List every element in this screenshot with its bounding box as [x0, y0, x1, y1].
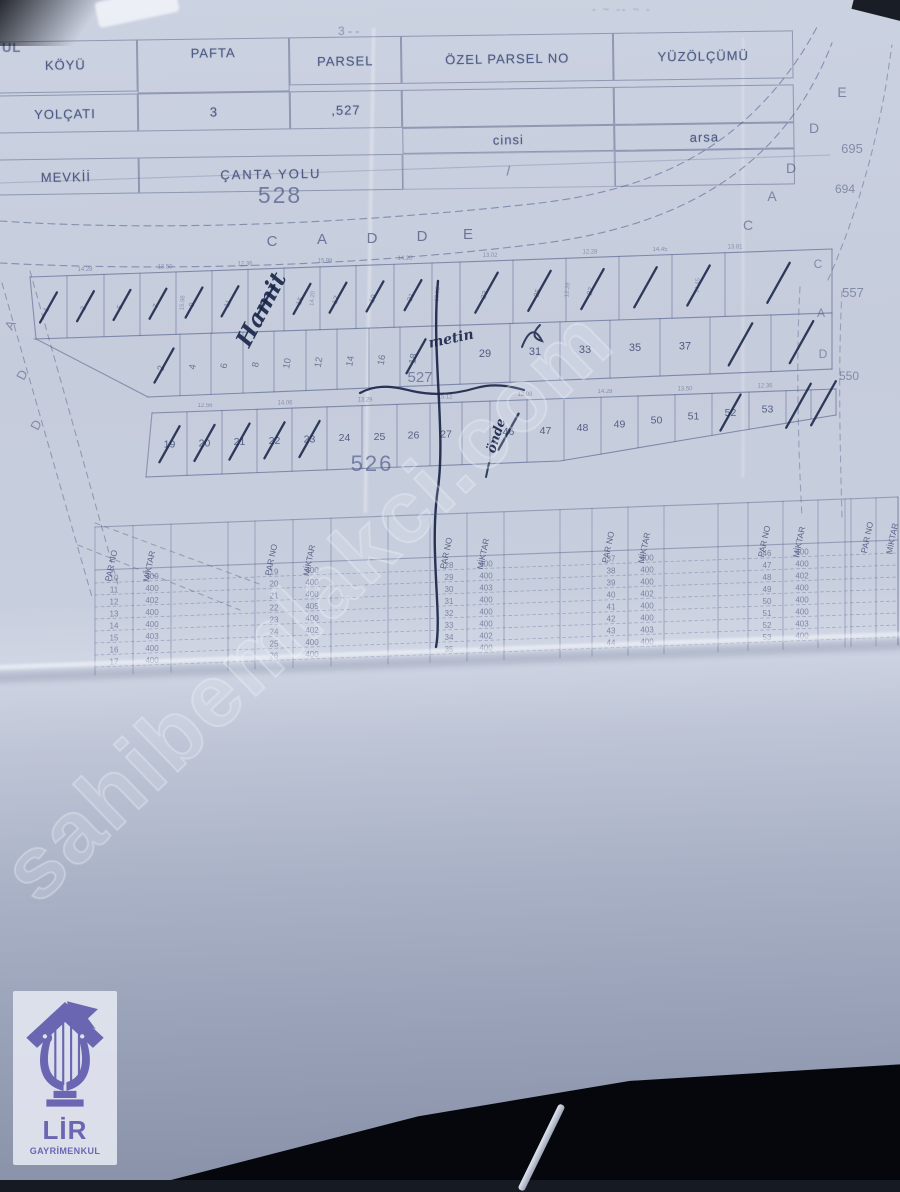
- dimension-number: 13.29: [357, 398, 373, 404]
- table-par-no-value: 39: [607, 579, 616, 588]
- pen-slash-mark: [720, 395, 740, 431]
- parcel-number: 16: [376, 354, 389, 366]
- adjacent-parcel-number: 695: [841, 141, 863, 156]
- table-miktar-value: 403: [795, 620, 809, 629]
- table-miktar-value: 403: [640, 625, 654, 634]
- table-miktar-value: 402: [479, 631, 493, 640]
- table-miktar-value: 403: [479, 583, 493, 592]
- table-miktar-value: 402: [145, 596, 159, 605]
- logo-name: LİR: [13, 1117, 117, 1143]
- map-line: [146, 413, 152, 477]
- adjacent-parcel-number: 694: [835, 182, 855, 196]
- table-par-no-value: 14: [110, 621, 119, 630]
- table-par-no-value: 51: [763, 609, 772, 618]
- map-line: [840, 291, 842, 517]
- pen-slash-mark: [299, 421, 319, 457]
- dimension-number: 14.20: [309, 290, 316, 306]
- parcel-number: 37: [679, 340, 691, 352]
- agency-logo-card: LİR GAYRİMENKUL: [13, 991, 117, 1165]
- table-miktar-value: 400: [640, 601, 654, 610]
- table-miktar-value: 400: [640, 565, 654, 574]
- road-label-letter: D: [809, 120, 819, 136]
- table-miktar-value: 400: [479, 595, 493, 604]
- pen-slash-mark: [229, 424, 249, 460]
- parcel-number: 49: [614, 418, 626, 430]
- dimension-number: 14.20: [397, 256, 413, 262]
- road-label-letter: C: [743, 217, 753, 233]
- dimension-number: 13.81: [727, 244, 743, 250]
- parcel-number: 24: [339, 432, 351, 444]
- pen-slash-mark: [634, 267, 656, 307]
- table-par-no-value: 38: [607, 567, 616, 576]
- map-line: [0, 155, 830, 183]
- dimension-number: 12.36: [237, 261, 253, 267]
- table-miktar-value: 400: [145, 572, 159, 581]
- handwritten-name: metin: [427, 327, 475, 352]
- table-miktar-value: 400: [795, 560, 809, 569]
- table-miktar-value: 402: [640, 589, 654, 598]
- table-par-no-value: 10: [110, 573, 119, 582]
- lyre-house-logo-icon: [22, 996, 108, 1114]
- map-line: [95, 523, 262, 585]
- pen-slash-mark: [475, 273, 497, 313]
- table-miktar-value: 400: [640, 577, 654, 586]
- parcel-number: 48: [577, 422, 589, 434]
- road-label-letter: A: [1, 317, 18, 332]
- dimension-number: 15.98: [179, 295, 186, 311]
- table-par-no-value: 41: [607, 603, 616, 612]
- table-par-no-value: 30: [445, 585, 454, 594]
- table-par-no-value: 42: [607, 615, 616, 624]
- dimension-number: 12.56: [197, 403, 213, 409]
- dimension-number: 12.36: [757, 383, 773, 389]
- road-label-letter: D: [786, 160, 796, 176]
- table-miktar-value: 400: [145, 620, 159, 629]
- table-par-no-value: 29: [445, 573, 454, 582]
- parcel-number: 50: [651, 414, 663, 426]
- dimension-number: 14.28: [77, 267, 93, 273]
- table-par-no-value: 12: [110, 597, 119, 606]
- road-label-letter: D: [417, 228, 428, 245]
- map-line: [95, 497, 898, 527]
- table-header-par-no: PAR NO: [859, 520, 876, 554]
- table-miktar-value: 400: [479, 607, 493, 616]
- logo-subtitle: GAYRİMENKUL: [13, 1146, 117, 1156]
- table-row-line: [95, 577, 898, 607]
- parcel-number: 35: [629, 342, 641, 354]
- dimension-number: 15.98: [317, 259, 333, 265]
- cadastral-map: CADDECADDECADADD528527526695694557550135…: [0, 25, 900, 680]
- road-label-letter: A: [767, 188, 777, 204]
- table-miktar-value: 400: [795, 608, 809, 617]
- map-line: [828, 45, 892, 280]
- map-line: [78, 545, 240, 610]
- pen-slash-mark: [581, 269, 603, 309]
- table-miktar-value: 400: [479, 619, 493, 628]
- parcel-number: 53: [762, 403, 774, 415]
- road-label-letter: C: [814, 257, 823, 271]
- pen-slash-mark: [811, 381, 836, 425]
- illegible-handwriting: - ~ -- ~ -: [592, 4, 652, 16]
- table-par-no-value: 34: [445, 633, 454, 642]
- parcel-number: 10: [281, 357, 294, 369]
- road-label-letter: A: [317, 231, 327, 248]
- table-row-line: [95, 553, 898, 583]
- pen-slash-mark: [194, 425, 214, 461]
- road-label-letter: D: [27, 417, 45, 432]
- table-miktar-value: 400: [795, 584, 809, 593]
- table-par-no-value: 52: [763, 621, 772, 630]
- pen-slash-mark: [264, 422, 284, 458]
- dimension-number: 14.45: [652, 247, 668, 253]
- map-line: [0, 25, 818, 226]
- dimension-number: 14.45: [694, 277, 701, 293]
- parcel-number: 6: [219, 362, 231, 369]
- pen-slash-mark: [790, 321, 814, 363]
- table-par-no-value: 15: [110, 633, 119, 642]
- table-par-no-value: 47: [763, 561, 772, 570]
- table-par-no-value: 40: [607, 591, 616, 600]
- pen-slash-mark: [767, 263, 789, 303]
- table-par-no-value: 32: [445, 609, 454, 618]
- table-miktar-value: 402: [795, 572, 809, 581]
- road-label-letter: C: [267, 233, 278, 250]
- table-miktar-value: 400: [479, 571, 493, 580]
- dimension-number: 13.50: [677, 386, 693, 392]
- table-miktar-value: 400: [640, 613, 654, 622]
- road-label-letter: D: [819, 347, 828, 361]
- table-par-no-value: 13: [110, 609, 119, 618]
- table-par-no-value: 50: [763, 597, 772, 606]
- map-line: [30, 249, 832, 277]
- adjacent-parcel-number: 557: [842, 285, 864, 300]
- parcel-number: 8: [250, 361, 262, 368]
- parcel-number: 4: [187, 363, 199, 370]
- table-par-no-value: 28: [445, 561, 454, 570]
- table-miktar-value: 400: [145, 608, 159, 617]
- table-row-line: [95, 589, 898, 619]
- dimension-number: 14.06: [277, 400, 293, 406]
- dimension-number: 12.28: [582, 249, 598, 255]
- table-par-no-value: 43: [607, 627, 616, 636]
- table-miktar-value: 400: [145, 584, 159, 593]
- table-par-no-value: 33: [445, 621, 454, 630]
- road-label-letter: D: [367, 230, 378, 247]
- parcel-number: 12: [313, 356, 326, 368]
- dimension-number: 13.02: [482, 253, 498, 259]
- parcel-number: 51: [688, 411, 700, 423]
- pen-slash-mark: [729, 323, 753, 365]
- table-par-no-value: 31: [445, 597, 454, 606]
- map-line: [95, 540, 898, 570]
- table-miktar-value: 403: [145, 632, 159, 641]
- block-label: 528: [258, 182, 302, 208]
- parcel-number: 25: [374, 431, 386, 443]
- table-miktar-value: 400: [795, 548, 809, 557]
- road-label-letter: E: [837, 84, 846, 100]
- table-miktar-value: 400: [479, 559, 493, 568]
- road-label-letter: D: [13, 367, 31, 382]
- table-par-no-value: 48: [763, 573, 772, 582]
- table-par-no-value: 37: [607, 555, 616, 564]
- table-par-no-value: 11: [110, 585, 119, 594]
- handwritten-name: Hamit: [230, 267, 292, 352]
- table-row-line: [95, 565, 898, 595]
- dimension-number: 13.50: [157, 264, 173, 270]
- parcel-number: 14: [344, 355, 357, 367]
- pen-slash-mark: [159, 426, 179, 462]
- table-par-no-value: 49: [763, 585, 772, 594]
- table-miktar-value: 400: [795, 596, 809, 605]
- table-par-no-value: 46: [763, 549, 772, 558]
- adjacent-parcel-number: 550: [839, 369, 859, 383]
- table-par-no-value: 16: [110, 645, 119, 654]
- table-miktar-value: 400: [145, 644, 159, 653]
- block-label: 527: [407, 369, 432, 386]
- road-label-letter: E: [463, 226, 473, 243]
- table-miktar-value: 400: [640, 553, 654, 562]
